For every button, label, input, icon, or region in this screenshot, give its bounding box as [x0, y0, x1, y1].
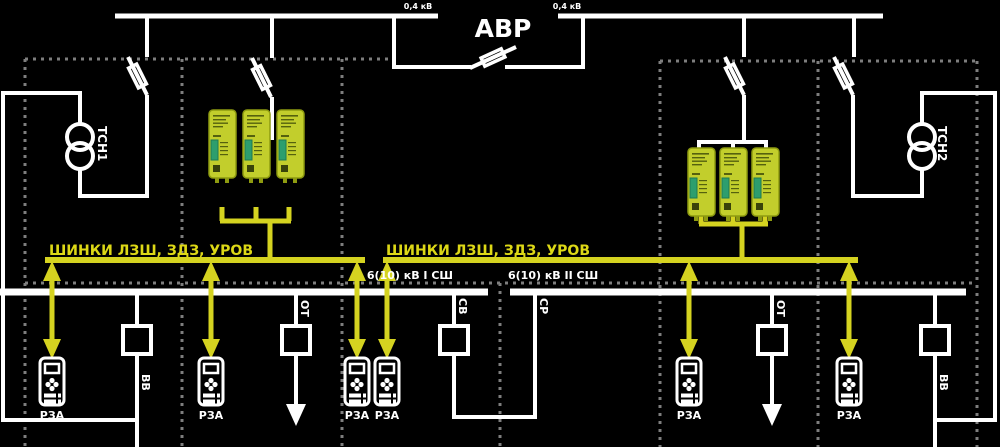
- rza-device-icon: [199, 358, 223, 405]
- rza-device-icon: [375, 358, 399, 405]
- yellow-labels: ШИНКИ ЛЗШ, ЗДЗ, УРОВ ШИНКИ ЛЗШ, ЗДЗ, УРО…: [49, 243, 590, 259]
- avr-label: АВР: [475, 14, 532, 43]
- labels: АВР 0,4 кВ 0,4 кВ ТСН1 ТСН2 6(10) кВ I С…: [40, 2, 950, 422]
- vv2-breaker: [921, 326, 949, 354]
- ot2-feeder-arrow: [762, 404, 782, 426]
- logic-bus-label-right: ШИНКИ ЛЗШ, ЗДЗ, УРОВ: [386, 243, 590, 259]
- sv-label: СВ: [456, 298, 469, 314]
- rza-arrow-2: [202, 261, 220, 359]
- section1-bus-label: 6(10) кВ I СШ: [367, 269, 453, 282]
- avr-switch-blade: [470, 47, 516, 68]
- rza-arrow-1: [43, 261, 61, 359]
- rza-device-icon: [345, 358, 369, 405]
- rza-arrow-3: [348, 261, 366, 359]
- device-group-right: [688, 148, 779, 221]
- rza-device-icon: [677, 358, 701, 405]
- 04kv-label-right: 0,4 кВ: [553, 2, 581, 11]
- device-group-left: [209, 110, 304, 183]
- ot2-breaker: [758, 326, 786, 354]
- section2-bus-label: 6(10) кВ II СШ: [508, 269, 598, 282]
- ot1-label: ОТ: [298, 300, 311, 317]
- sr-label: СР: [537, 298, 550, 314]
- logic-bus-label-left: ШИНКИ ЛЗШ, ЗДЗ, УРОВ: [49, 243, 253, 259]
- ot1-breaker: [282, 326, 310, 354]
- terminal-device: [720, 148, 747, 221]
- rza-label: РЗА: [345, 409, 370, 422]
- terminal-device: [688, 148, 715, 221]
- tsn1-winding-bottom: [67, 143, 93, 169]
- rza-label: РЗА: [199, 409, 224, 422]
- sv-breaker: [440, 326, 468, 354]
- avr-left-lead: [394, 16, 471, 67]
- rza-arrow-5: [680, 261, 698, 359]
- rza-label: РЗА: [677, 409, 702, 422]
- vv1-label: ВВ: [139, 374, 152, 391]
- rza-device-icon: [40, 358, 64, 405]
- rza-arrow-6: [840, 261, 858, 359]
- terminal-device: [752, 148, 779, 221]
- rza-device-icon: [837, 358, 861, 405]
- rza-label: РЗА: [40, 409, 65, 422]
- terminal-device: [209, 110, 236, 183]
- tsn2-winding-bottom: [909, 143, 935, 169]
- ot2-label: ОТ: [774, 300, 787, 317]
- 04kv-label-left: 0,4 кВ: [404, 2, 432, 11]
- tsn1-label: ТСН1: [95, 126, 109, 161]
- terminal-device: [243, 110, 270, 183]
- terminal-device: [277, 110, 304, 183]
- vv2-label: ВВ: [937, 374, 950, 391]
- terminal-devices: [209, 110, 779, 221]
- diagram-canvas: АВР 0,4 кВ 0,4 кВ ТСН1 ТСН2 6(10) кВ I С…: [0, 0, 1000, 447]
- substation-single-line-diagram: АВР 0,4 кВ 0,4 кВ ТСН1 ТСН2 6(10) кВ I С…: [0, 0, 1000, 447]
- tsn2-label: ТСН2: [935, 126, 949, 161]
- vv1-breaker: [123, 326, 151, 354]
- ot1-feeder-arrow: [286, 404, 306, 426]
- rza-label: РЗА: [375, 409, 400, 422]
- rza-label: РЗА: [837, 409, 862, 422]
- rza-devices: [40, 358, 861, 405]
